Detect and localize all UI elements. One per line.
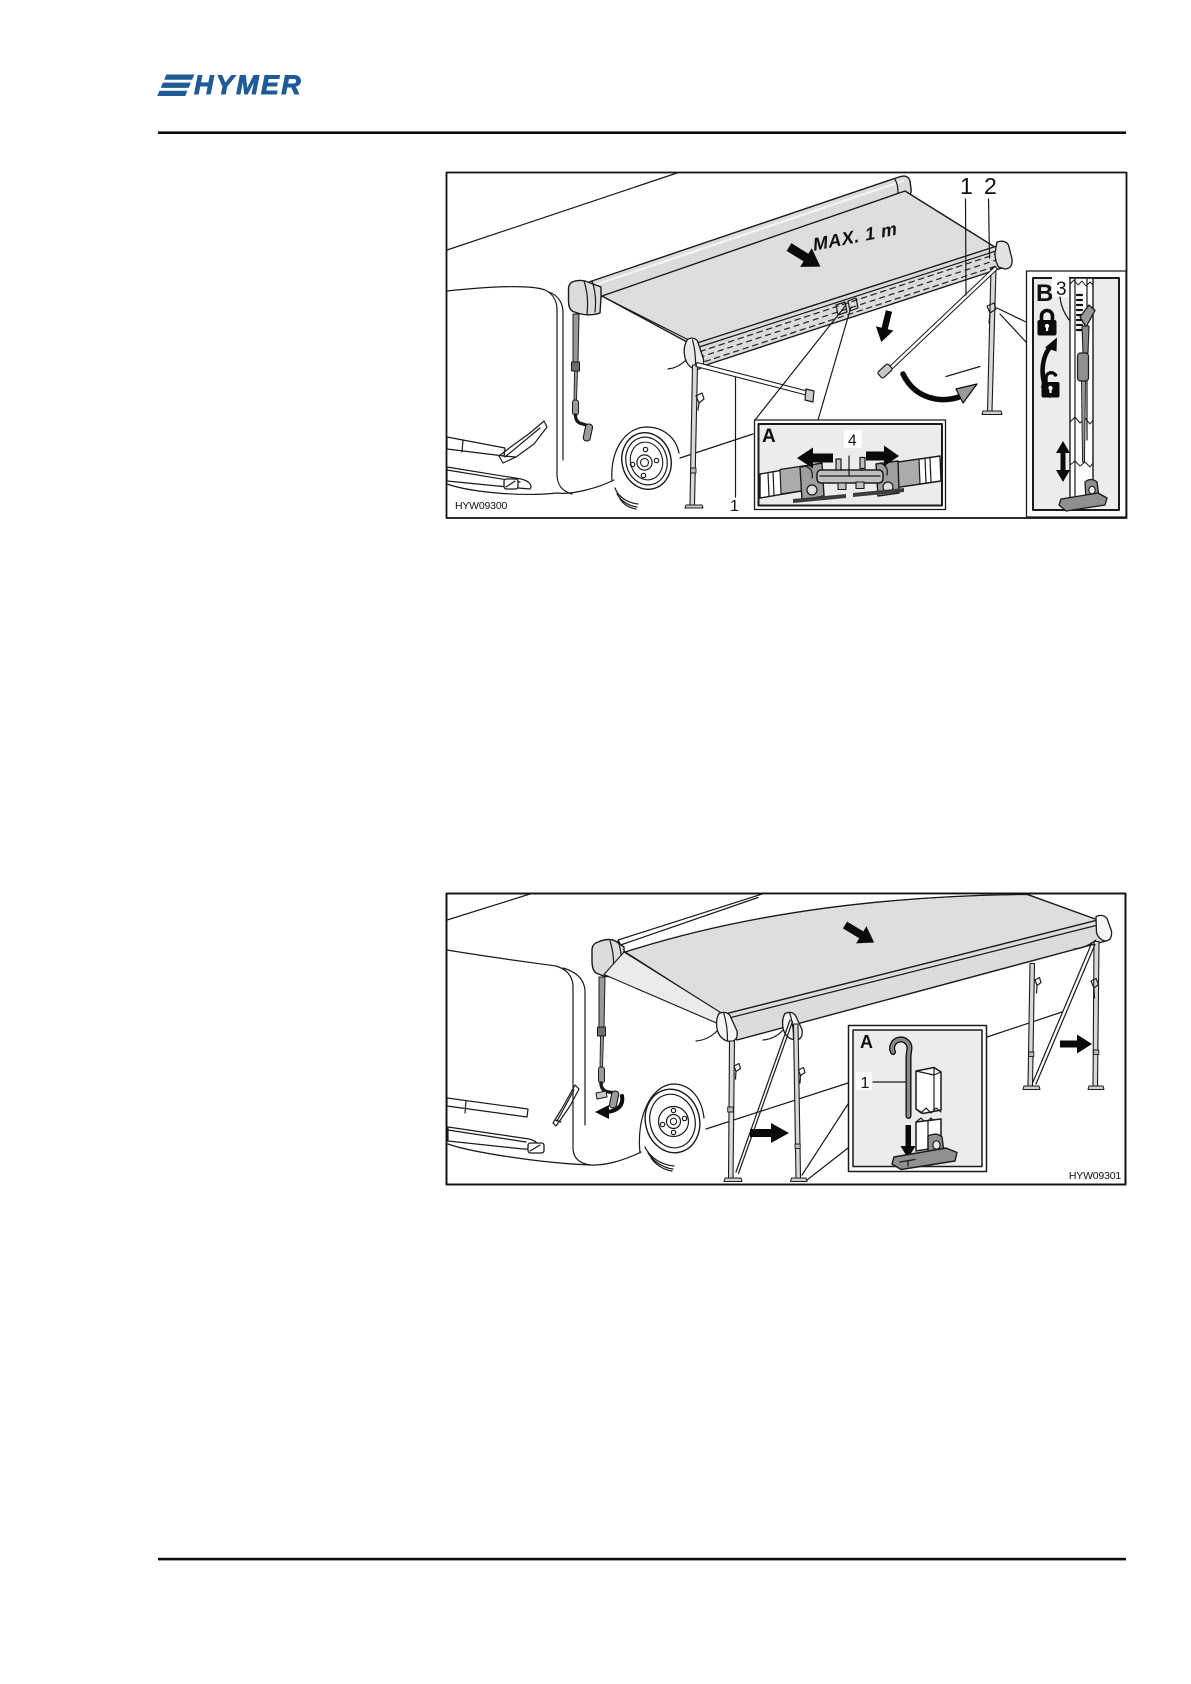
svg-text:3: 3: [1056, 279, 1067, 300]
svg-text:1: 1: [861, 1075, 870, 1092]
svg-text:1: 1: [730, 498, 739, 515]
svg-text:2: 2: [984, 173, 997, 199]
svg-text:HYW09300: HYW09300: [455, 500, 507, 512]
svg-text:HYW09301: HYW09301: [1069, 1170, 1121, 1182]
svg-text:A: A: [860, 1032, 873, 1052]
svg-text:HYMER: HYMER: [194, 70, 303, 100]
svg-text:B: B: [1036, 280, 1053, 307]
svg-text:1: 1: [960, 173, 973, 199]
svg-text:4: 4: [848, 433, 857, 450]
svg-text:A: A: [762, 426, 776, 447]
